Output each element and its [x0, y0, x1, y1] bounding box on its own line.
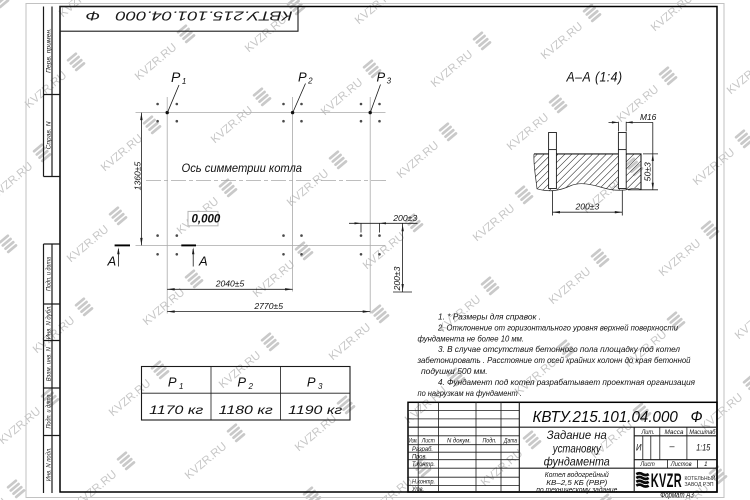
svg-text:Утв.: Утв.: [411, 486, 424, 493]
svg-text:50±3: 50±3: [642, 162, 652, 181]
svg-text:по техническому задание: по техническому задание: [536, 485, 617, 494]
svg-text:Справ. N: Справ. N: [45, 121, 52, 150]
svg-text:забетонировать . Расстояние о: забетонировать . Расстояние от осей край…: [417, 355, 691, 365]
svg-text:P: P: [237, 375, 246, 390]
svg-text:2770±5: 2770±5: [253, 301, 283, 311]
svg-text:1. * Размеры для справок .: 1. * Размеры для справок .: [438, 312, 541, 322]
svg-text:Формат А3: Формат А3: [660, 491, 694, 500]
svg-text:2040±5: 2040±5: [215, 279, 245, 289]
svg-text:Масса: Масса: [665, 429, 684, 436]
svg-text:1190 кг: 1190 кг: [288, 405, 342, 417]
svg-text:1:15: 1:15: [696, 441, 711, 452]
svg-text:N докум.: N докум.: [447, 437, 471, 445]
svg-text:М16: М16: [640, 112, 657, 122]
svg-text:Лит.: Лит.: [641, 429, 655, 436]
svg-text:КОТЕЛЬНЫЙ: КОТЕЛЬНЫЙ: [685, 474, 716, 482]
svg-text:Разраб.: Разраб.: [412, 445, 433, 453]
svg-text:подушки 500 мм.: подушки 500 мм.: [421, 366, 488, 376]
svg-text:200±3: 200±3: [392, 213, 417, 223]
svg-text:Ось симметрии котла: Ось симметрии котла: [182, 161, 303, 175]
svg-text:KVZR: KVZR: [651, 471, 682, 492]
svg-text:Листов: Листов: [670, 461, 692, 468]
svg-text:установку: установку: [552, 441, 601, 455]
svg-text:3. В случае отсутствия бетонн: 3. В случае отсутствия бетонного пола пл…: [438, 344, 680, 354]
svg-text:фундамента: фундамента: [544, 455, 610, 469]
svg-text:Дата: Дата: [503, 438, 517, 445]
svg-text:200±3: 200±3: [392, 266, 402, 291]
svg-text:200±3: 200±3: [574, 202, 599, 212]
svg-text:Лист: Лист: [421, 438, 435, 445]
svg-text:1: 1: [179, 382, 183, 391]
svg-text:P: P: [307, 375, 316, 390]
svg-text:А: А: [107, 254, 117, 269]
svg-text:КВТУ.215.101.04.000 Ф: КВТУ.215.101.04.000 Ф: [86, 9, 293, 23]
svg-text:2. Отклонение от горизонтальн: 2. Отклонение от горизонтального уровня …: [437, 322, 678, 332]
svg-text:3: 3: [318, 382, 323, 391]
svg-text:Инв. N подл.: Инв. N подл.: [45, 447, 52, 481]
svg-text:А: А: [198, 254, 208, 269]
svg-text:Взам. инв. N: Взам. инв. N: [45, 347, 52, 381]
svg-text:Изм.: Изм.: [409, 438, 418, 445]
svg-text:1180 кг: 1180 кг: [219, 405, 273, 417]
svg-text:1: 1: [704, 461, 708, 468]
svg-text:Задание на: Задание на: [547, 428, 607, 442]
svg-text:Пров.: Пров.: [412, 453, 427, 460]
svg-text:по нагрузкам на фундамент .: по нагрузкам на фундамент .: [418, 388, 522, 398]
svg-text:ЗАВОД РЭП: ЗАВОД РЭП: [685, 482, 714, 488]
svg-text:Перв. примен.: Перв. примен.: [45, 28, 52, 73]
svg-text:0,000: 0,000: [192, 214, 221, 226]
svg-text:–: –: [668, 441, 675, 451]
svg-text:Лист: Лист: [640, 461, 656, 468]
svg-text:Т.контр.: Т.контр.: [412, 461, 435, 468]
svg-text:Масштаб: Масштаб: [689, 428, 715, 436]
svg-text:P: P: [168, 375, 177, 390]
svg-text:1360±5: 1360±5: [132, 161, 142, 190]
svg-text:фундамента не более 10 мм.: фундамента не более 10 мм.: [418, 333, 525, 343]
svg-text:Инв. N дубл.: Инв. N дубл.: [45, 305, 52, 339]
svg-text:Подп.: Подп.: [483, 437, 497, 445]
svg-text:И: И: [636, 442, 642, 452]
svg-text:1170 кг: 1170 кг: [149, 405, 203, 417]
svg-text:Подп. и дата: Подп. и дата: [45, 257, 52, 291]
svg-text:Подп. и дата: Подп. и дата: [45, 394, 52, 428]
svg-text:А–А (1:4): А–А (1:4): [566, 70, 623, 85]
svg-text:4. Фундамент под котел разраб: 4. Фундамент под котел разрабатывает про…: [438, 377, 696, 387]
svg-text:КВТУ.215.101.04.000 Ф: КВТУ.215.101.04.000 Ф: [533, 409, 703, 426]
svg-text:2: 2: [247, 382, 253, 391]
svg-text:Н.контр.: Н.контр.: [412, 479, 435, 486]
